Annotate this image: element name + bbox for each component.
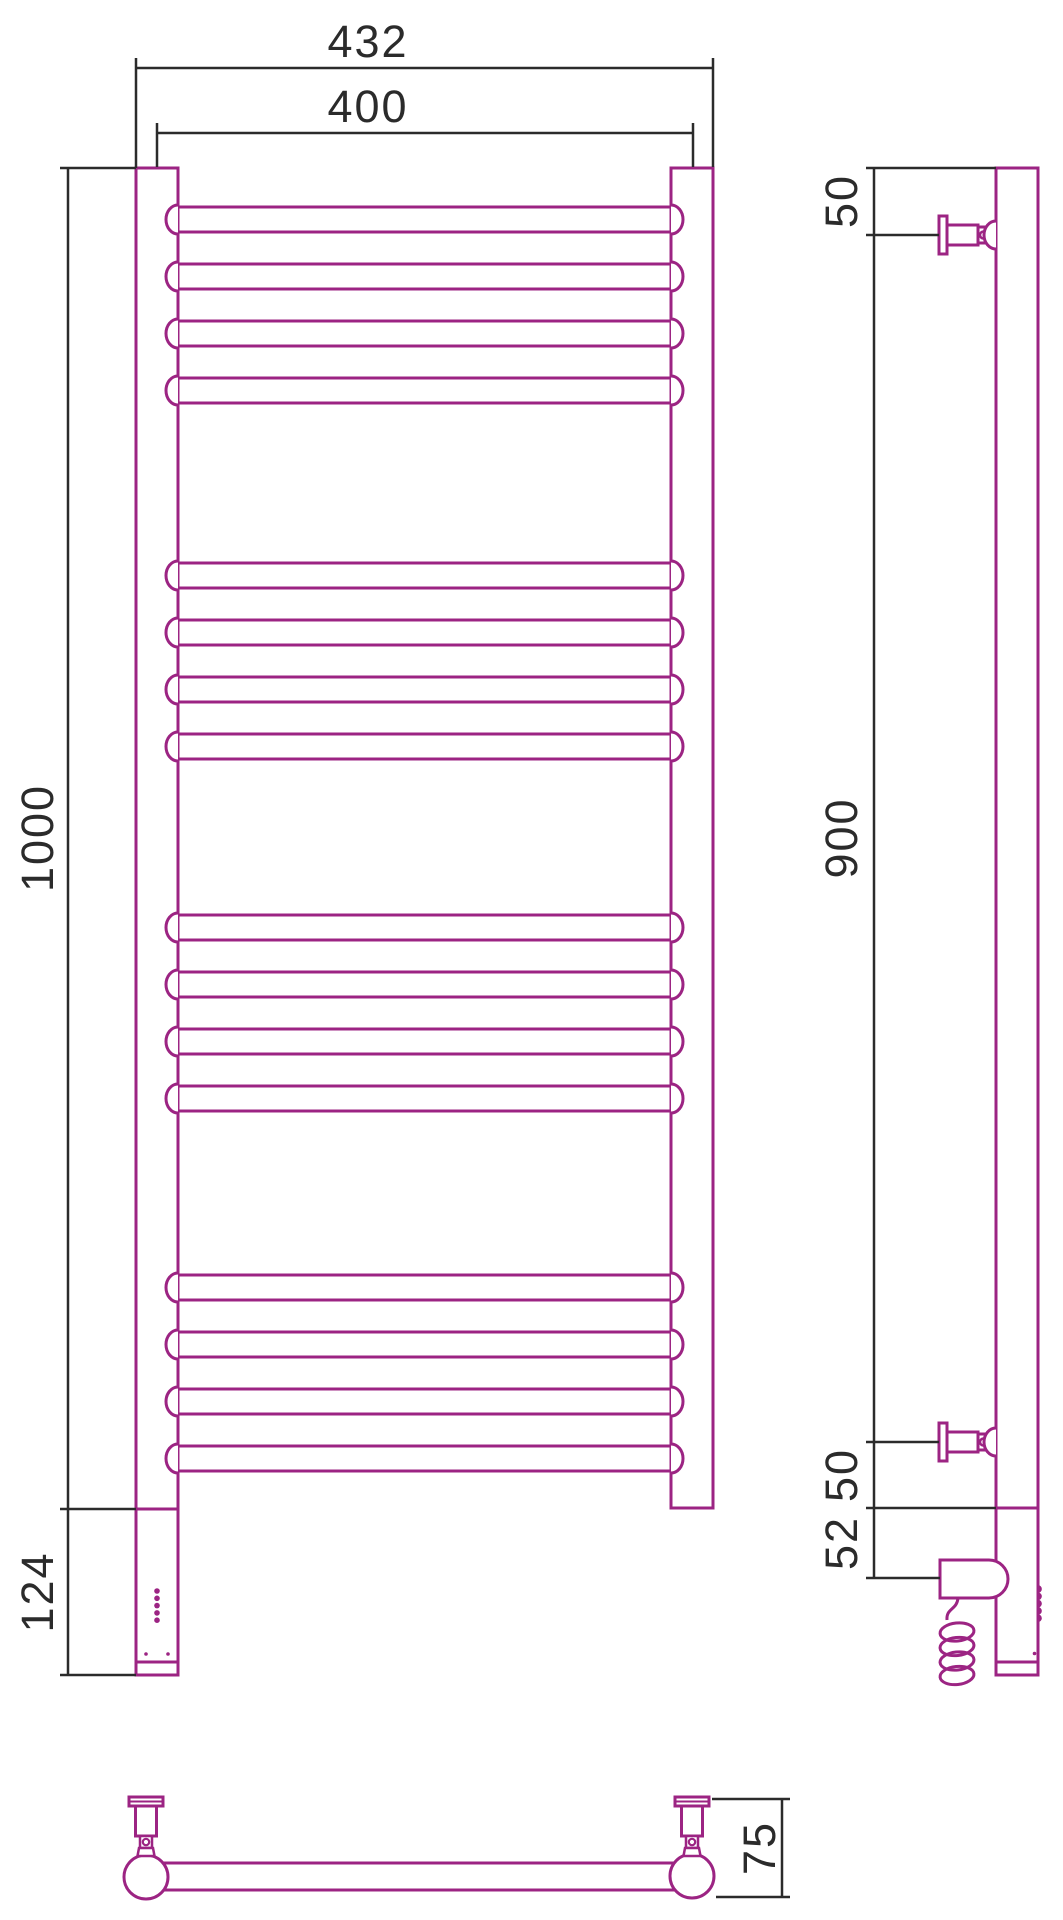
side-brackets: [939, 216, 996, 1461]
bracket-foot: [684, 1848, 701, 1856]
bracket-body: [947, 1432, 978, 1452]
dim-heater-height: 124: [12, 1509, 136, 1675]
rung: [178, 1446, 671, 1471]
dim-label-432: 432: [327, 16, 408, 67]
rung-left-joint: [166, 732, 178, 761]
rung-left-joint: [166, 1330, 178, 1359]
bracket-body: [682, 1806, 703, 1836]
rung-right-joint: [671, 1084, 683, 1113]
bracket-screw: [143, 1839, 149, 1845]
rung-left-joint: [166, 1084, 178, 1113]
rung-left-joint: [166, 1273, 178, 1302]
bracket-body: [136, 1806, 157, 1836]
base-dot: [166, 1652, 170, 1656]
rung: [178, 734, 671, 759]
rung-right-joint: [671, 319, 683, 348]
rung-right-joint: [671, 561, 683, 590]
towel-rail-drawing: 432 400 1000 124: [0, 0, 1063, 1920]
rung: [178, 378, 671, 403]
rung: [178, 207, 671, 232]
dim-overall-width: 432: [136, 16, 713, 168]
rung-right-joint: [671, 1330, 683, 1359]
dim-depth: 75: [712, 1799, 790, 1897]
bottom-view: 75: [124, 1797, 790, 1899]
cable-coil: [939, 1621, 975, 1686]
drawing-sheet: 432 400 1000 124: [0, 0, 1063, 1920]
base-dot: [144, 1652, 148, 1656]
indicator-dot: [154, 1610, 160, 1616]
rung-left-joint: [166, 618, 178, 647]
rung-right-joint: [671, 618, 683, 647]
power-cable: [947, 1598, 958, 1620]
rung-left-joint: [166, 262, 178, 291]
rung-right-joint: [671, 970, 683, 999]
rung-right-joint: [671, 1387, 683, 1416]
base-dot: [1033, 1652, 1037, 1656]
heater-box: [940, 1560, 1008, 1598]
right-collector-tube: [671, 168, 713, 1508]
dim-side-column: 50 900 50 52: [816, 168, 996, 1578]
rung: [178, 915, 671, 940]
indicator-dot: [154, 1588, 160, 1594]
dim-body-height: 1000: [12, 168, 136, 1509]
dim-label-50-bottom: 50: [816, 1448, 867, 1502]
heater-housing-cap: [136, 1662, 178, 1675]
dim-label-400: 400: [327, 81, 408, 132]
wall-bracket: [939, 1423, 996, 1461]
rung: [178, 563, 671, 588]
dim-label-50-top: 50: [816, 174, 867, 228]
rung: [178, 972, 671, 997]
side-heater-cap: [996, 1662, 1038, 1675]
rung-right-joint: [671, 262, 683, 291]
rung-left-joint: [166, 970, 178, 999]
rung-right-joint: [671, 376, 683, 405]
rung: [178, 264, 671, 289]
rung-left-joint: [166, 1387, 178, 1416]
rung: [178, 321, 671, 346]
rung-right-joint: [671, 205, 683, 234]
bracket-tube-joint: [984, 1428, 996, 1456]
rung: [178, 1275, 671, 1300]
bottom-rung-bar-fill: [146, 1863, 692, 1890]
rung-left-joint: [166, 205, 178, 234]
heater-housing: [136, 1509, 178, 1662]
dim-label-124: 124: [12, 1551, 63, 1632]
bottom-brackets: [129, 1797, 709, 1856]
rung-right-joint: [671, 1027, 683, 1056]
bracket-foot: [138, 1848, 155, 1856]
rung-left-joint: [166, 913, 178, 942]
rung-left-joint: [166, 319, 178, 348]
wall-bracket: [939, 216, 996, 254]
side-view: 50 900 50 52: [816, 168, 1041, 1686]
rung: [178, 1029, 671, 1054]
rung-group: [166, 205, 683, 1473]
rung-left-joint: [166, 561, 178, 590]
rung: [178, 620, 671, 645]
rung-left-joint: [166, 675, 178, 704]
indicator-dot: [154, 1617, 160, 1623]
rung: [178, 1332, 671, 1357]
side-tube: [996, 168, 1038, 1508]
dim-label-75: 75: [734, 1821, 785, 1875]
indicator-dot: [154, 1603, 160, 1609]
left-tube-section: [124, 1855, 168, 1899]
left-collector-tube: [136, 168, 178, 1509]
rung-right-joint: [671, 675, 683, 704]
rung-right-joint: [671, 732, 683, 761]
wall-bracket-bottom: [675, 1797, 709, 1856]
rung-left-joint: [166, 1027, 178, 1056]
rung: [178, 1389, 671, 1414]
rung: [178, 677, 671, 702]
bracket-tube-joint: [984, 221, 996, 249]
dim-label-900: 900: [816, 797, 867, 878]
front-view: 432 400 1000 124: [12, 16, 713, 1675]
rung-left-joint: [166, 1444, 178, 1473]
wall-bracket-bottom: [129, 1797, 163, 1856]
dim-center-width: 400: [157, 81, 693, 167]
indicator-dot: [154, 1596, 160, 1602]
dim-label-52: 52: [816, 1516, 867, 1570]
bracket-screw: [689, 1839, 695, 1845]
dim-label-1000: 1000: [12, 784, 63, 892]
rung-right-joint: [671, 913, 683, 942]
bracket-body: [947, 225, 978, 245]
rung-left-joint: [166, 376, 178, 405]
rung-right-joint: [671, 1273, 683, 1302]
right-tube-section: [670, 1854, 714, 1898]
rung-right-joint: [671, 1444, 683, 1473]
rung: [178, 1086, 671, 1111]
